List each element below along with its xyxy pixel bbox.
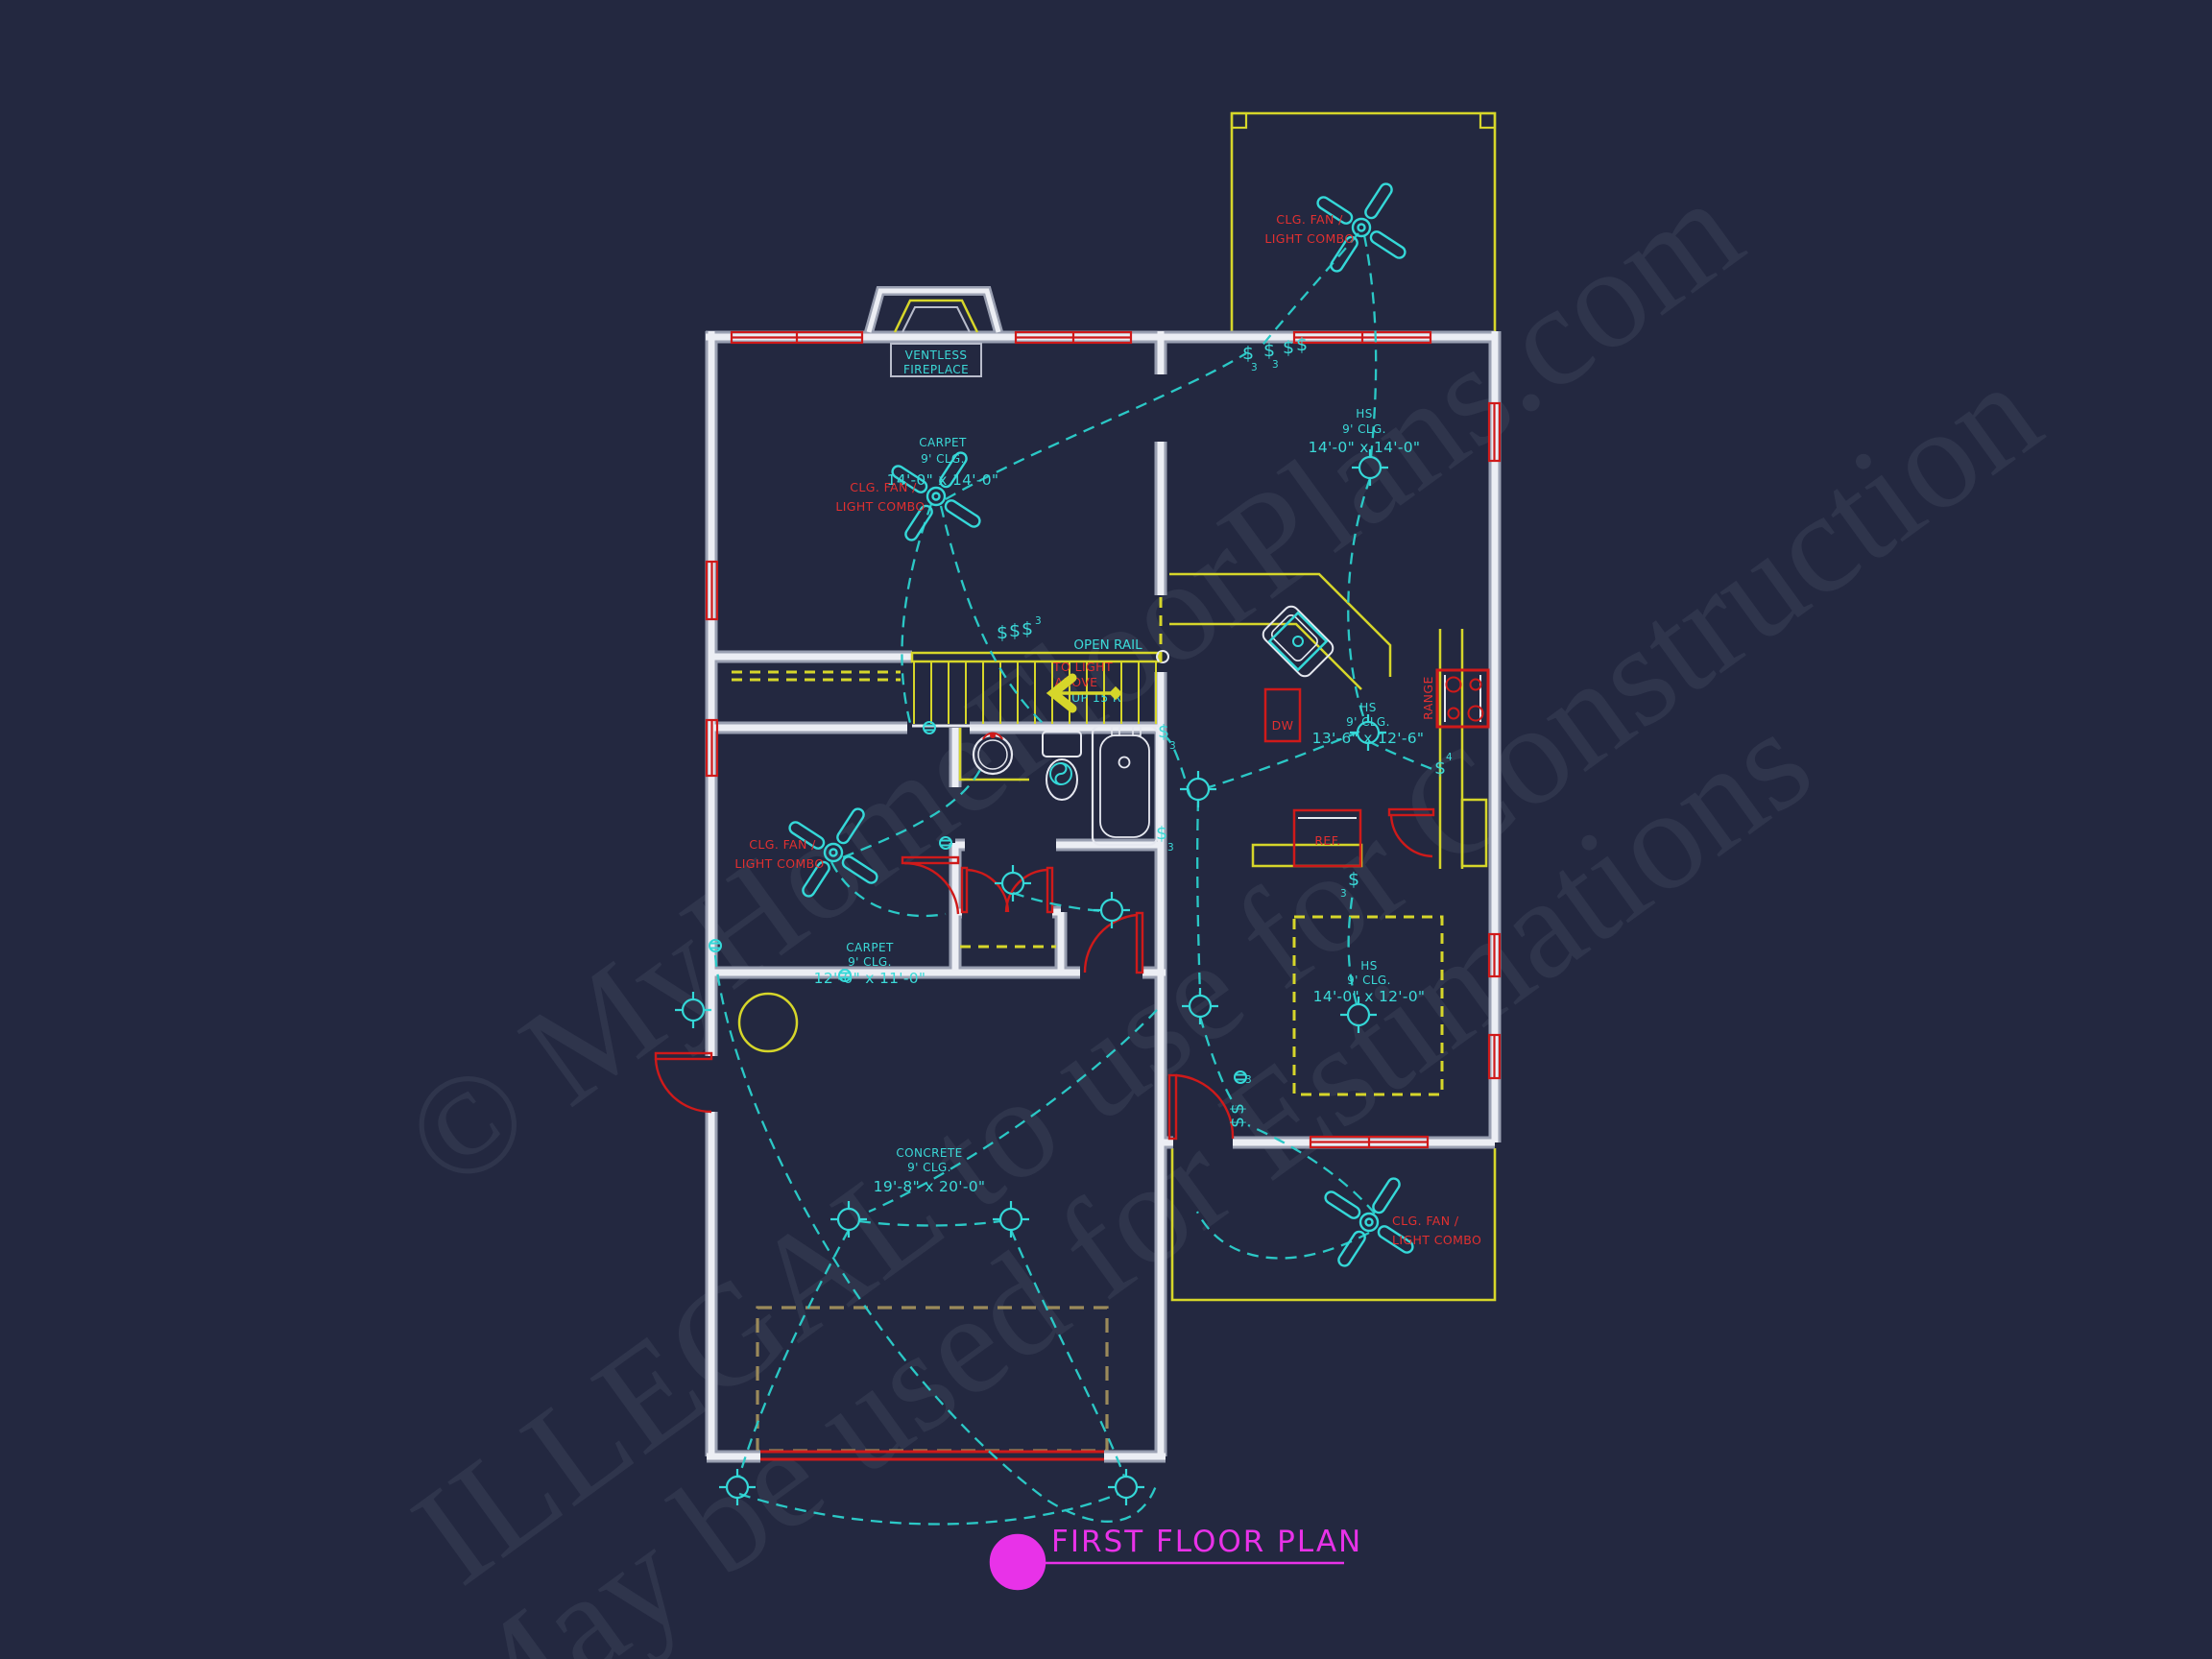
switch-3way-sub: 3 (1272, 359, 1279, 371)
switch-4way-sub: 4 (1446, 752, 1453, 763)
room-ceiling: 9' CLG. (1342, 422, 1386, 436)
room-size: 12'-0" x 11'-0" (814, 970, 926, 987)
switch-3way-sub: 3 (1340, 888, 1347, 900)
switch-symbol: $ (1263, 340, 1275, 361)
fan-label-top-porch: CLG. FAN / LIGHT COMBO (1264, 212, 1354, 246)
room-finish: HS (1360, 959, 1377, 973)
fireplace-label-2: FIREPLACE (903, 363, 969, 376)
switch-symbol: $ (1348, 869, 1359, 890)
room-size: 13'-6" x 12'-6" (1312, 730, 1425, 747)
room-finish: HS (1356, 407, 1372, 421)
fan-label-line2: LIGHT COMBO (1392, 1233, 1481, 1247)
switch-symbol: $ (1434, 757, 1446, 779)
dishwasher-label: DW (1272, 718, 1294, 733)
switch-3way-sub: 3 (1245, 1074, 1252, 1086)
room-size: 14'-0" x 12'-0" (1313, 988, 1426, 1005)
open-rail-label: OPEN RAIL (1073, 637, 1142, 653)
dishwasher: DW (1265, 689, 1300, 741)
fan-label-line1: CLG. FAN / (749, 837, 816, 852)
light-fixture-icon (1180, 771, 1216, 807)
title-block: 1 FIRST FLOOR PLAN (991, 1525, 1362, 1589)
porch-top-right (1232, 113, 1495, 331)
switch-symbol: $ (1283, 337, 1294, 358)
fan-label-line2: LIGHT COMBO (835, 499, 925, 514)
room-size: 19'-8" x 20'-0" (874, 1178, 986, 1195)
switch-symbol: $ (1242, 343, 1254, 364)
room-ceiling: 9' CLG. (1347, 974, 1391, 987)
kitchen-label: HS 9' CLG. 13'-6" x 12'-6" (1312, 701, 1425, 747)
sheet-number: 1 (1008, 1545, 1027, 1581)
to-light-label-1: TO LIGHT (1052, 660, 1113, 674)
room-finish: CARPET (846, 941, 894, 954)
room-ceiling: 9' CLG. (1346, 715, 1390, 729)
fan-label-bottom-porch: CLG. FAN / LIGHT COMBO (1392, 1214, 1481, 1247)
fan-label-line2: LIGHT COMBO (734, 856, 824, 871)
switch-symbol: $ (1227, 1103, 1248, 1115)
porch-post (1480, 113, 1495, 128)
switch-3way-sub: 3 (1169, 740, 1176, 752)
switch-symbol: $ (1022, 618, 1033, 639)
room-finish: HS (1359, 701, 1376, 714)
switch-symbol: $ (997, 622, 1008, 643)
porch-post (1232, 113, 1246, 128)
switch-symbol: $ (1156, 823, 1167, 844)
switch-3way-sub: 3 (1167, 842, 1174, 854)
switch-symbol: $ (1227, 1117, 1248, 1128)
light-fixture-icon (995, 865, 1031, 902)
room-finish: CONCRETE (896, 1146, 962, 1160)
ceiling-fan-icon (1315, 181, 1407, 273)
switch-symbol: $ (1296, 334, 1308, 355)
switch-symbol: $ (1009, 620, 1021, 641)
light-fixture-icon (1094, 892, 1130, 928)
switch-3way-sub: 3 (1251, 362, 1258, 373)
room-finish: CARPET (919, 436, 967, 449)
fan-label-line1: CLG. FAN / (850, 480, 917, 494)
fireplace-label-1: VENTLESS (905, 349, 968, 362)
fan-label-line2: LIGHT COMBO (1264, 231, 1354, 246)
floor-plan-canvas: © MyHomeFloorPlans.com ILLEGAL to use fo… (0, 0, 2212, 1659)
room-ceiling: 9' CLG. (907, 1161, 951, 1174)
refrigerator-label: REF. (1314, 833, 1340, 848)
room-size: 14'-0" x 14'-0" (1309, 439, 1421, 456)
watermark-line-3: May be used for Estimations (405, 681, 1839, 1659)
fan-label-line1: CLG. FAN / (1392, 1214, 1459, 1228)
room-ceiling: 9' CLG. (848, 955, 892, 969)
fan-label-living: CLG. FAN / LIGHT COMBO (835, 480, 925, 514)
switch-symbol: $ (1158, 721, 1169, 742)
switch-3way-sub: 3 (1035, 615, 1042, 627)
room-ceiling: 9' CLG. (921, 452, 965, 466)
exterior-light-icon (1108, 1469, 1144, 1505)
watermark: © MyHomeFloorPlans.com ILLEGAL to use fo… (376, 148, 2067, 1659)
range-label: RANGE (1421, 676, 1435, 720)
fan-label-line1: CLG. FAN / (1276, 212, 1343, 227)
page-title: FIRST FLOOR PLAN (1051, 1525, 1362, 1559)
